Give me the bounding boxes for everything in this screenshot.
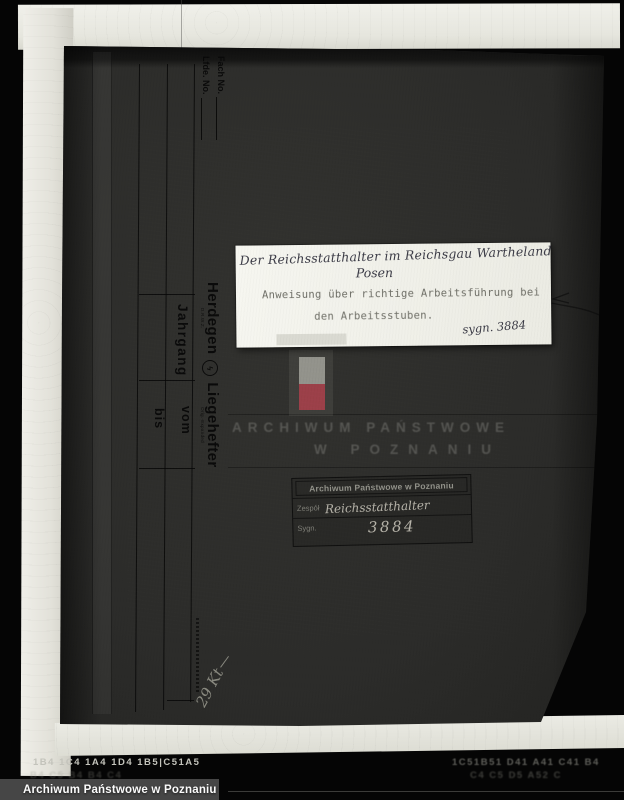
form-rule-2 — [163, 64, 168, 710]
folder-cover: Fach No. Lfde. No. Jahrgang vom bis Herd… — [0, 0, 624, 800]
film-scratch — [181, 0, 182, 52]
archive-stamp-header: Archiwum Państwowe w Poznaniu — [295, 477, 467, 496]
label-title-line2: Posen — [356, 265, 393, 280]
film-code-right-top: 1C51B51 D41 A41 C41 B4 — [452, 757, 600, 768]
folder-spine-crease — [92, 52, 112, 714]
label-signature-note: sygn. 3884 — [462, 317, 527, 336]
page-edge-top — [18, 3, 620, 50]
form-divider-1 — [139, 294, 195, 295]
label-title-line1: Der Reichsstatthalter im Reichsgau Warth… — [239, 243, 552, 268]
pen-squiggle — [545, 283, 620, 323]
vom-label: vom — [179, 406, 193, 435]
flag-sticker-red — [299, 384, 325, 410]
label-smudge — [276, 333, 346, 345]
label-typed-line1: Anweisung über richtige Arbeitsführung b… — [262, 286, 540, 301]
ghost-stamp: ARCHIWUM PAŃSTWOWE W POZNANIU — [228, 414, 600, 468]
film-code-left-top: 1B4 1C4 1A4 1D4 1B5|C51A5 — [33, 757, 200, 768]
ghost-stamp-line1: ARCHIWUM PAŃSTWOWE — [232, 420, 510, 435]
form-rule-1 — [135, 64, 140, 712]
lfde-no-label: Lfde. No. — [198, 56, 213, 95]
film-edge-line — [228, 791, 624, 792]
title-label: Der Reichsstatthalter im Reichsgau Warth… — [235, 242, 551, 347]
scanned-archive-folder-photo: Fach No. Lfde. No. Jahrgang vom bis Herd… — [0, 0, 624, 800]
brand-logo-icon: ϟ — [202, 360, 218, 376]
printer-imprint-mark — [196, 618, 199, 692]
zespol-value: Reichsstatthalter — [324, 498, 429, 516]
archive-stamp: Archiwum Państwowe w Poznaniu Zespół Rei… — [291, 474, 473, 547]
fach-lfde-block: Fach No. Lfde. No. — [198, 56, 228, 140]
flag-sticker-white — [299, 357, 325, 384]
brand-name-liegehefter: Liegehefter — [205, 382, 220, 467]
form-divider-3 — [139, 468, 195, 469]
brand-trademark: D.R.W.Z. — [200, 308, 205, 329]
brand-subtext: Orig.-Expanded — [200, 407, 205, 443]
label-typed-line2: den Arbeitsstuben. — [314, 310, 433, 323]
brand-name-herdegen: Herdegen — [205, 282, 220, 354]
archive-watermark-text: Archiwum Państwowe w Poznaniu — [23, 784, 217, 796]
film-code-right-bottom: C4 C5 D5 A52 C — [470, 770, 562, 781]
zespol-label: Zespół — [297, 503, 320, 513]
fach-no-label: Fach No. — [213, 56, 228, 94]
ghost-stamp-line2: W POZNANIU — [314, 442, 501, 457]
form-divider-2 — [139, 380, 195, 381]
bis-label: bis — [152, 408, 166, 429]
form-rule-3 — [190, 64, 195, 702]
archive-watermark-bar: Archiwum Państwowe w Poznaniu — [0, 779, 219, 800]
jahrgang-label: Jahrgang — [175, 304, 190, 377]
brand-imprint: Herdegen D.R.W.Z. ϟ Liegehefter Orig.-Ex… — [200, 282, 221, 487]
sygn-label: Sygn. — [297, 523, 316, 532]
folder-right-shadow — [552, 56, 604, 726]
form-divider-4 — [167, 700, 194, 701]
sygn-value: 3884 — [368, 517, 417, 536]
